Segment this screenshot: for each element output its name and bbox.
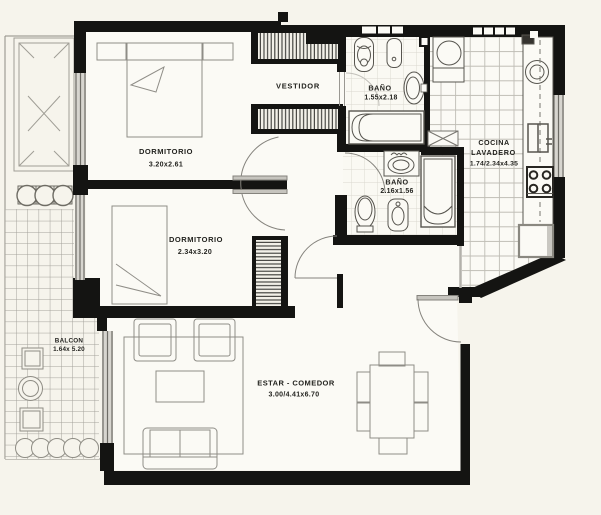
svg-text:VESTIDOR: VESTIDOR [276,82,320,91]
svg-text:DORMITORIO: DORMITORIO [169,235,223,244]
svg-text:3.00/4.41x6.70: 3.00/4.41x6.70 [269,392,320,399]
svg-text:COCINA: COCINA [478,138,509,147]
svg-text:BAÑO: BAÑO [368,84,391,93]
svg-text:1.74/2.34x4.35: 1.74/2.34x4.35 [470,161,518,168]
svg-text:1.64x 5.20: 1.64x 5.20 [53,346,85,353]
svg-text:1.55x2.18: 1.55x2.18 [364,95,397,102]
svg-text:BAÑO: BAÑO [385,178,408,187]
svg-text:2.34x3.20: 2.34x3.20 [178,249,212,256]
svg-text:2.16x1.56: 2.16x1.56 [380,188,413,195]
svg-text:LAVADERO: LAVADERO [471,148,516,157]
svg-text:ESTAR - COMEDOR: ESTAR - COMEDOR [257,379,335,388]
svg-text:DORMITORIO: DORMITORIO [139,147,193,156]
svg-text:3.20x2.61: 3.20x2.61 [149,162,183,169]
svg-text:BALCON: BALCON [55,338,84,345]
